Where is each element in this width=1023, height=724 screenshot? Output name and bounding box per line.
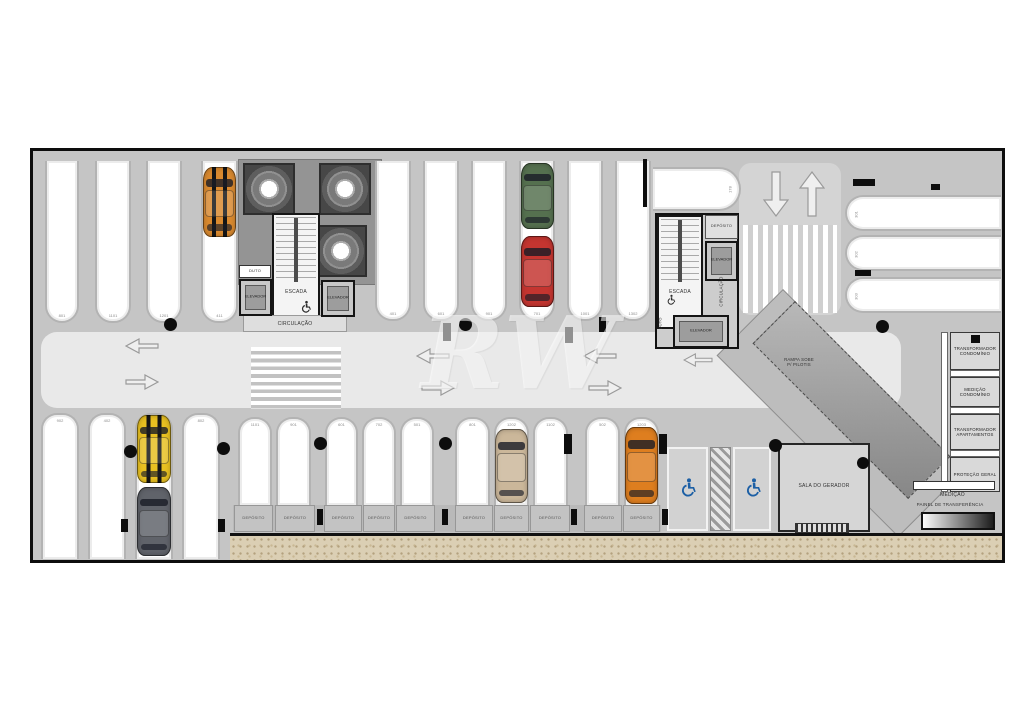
stall-number: 501 [402,422,432,427]
stall-number: 1001 [569,311,601,316]
storage-room: DEPÓSITO [705,215,738,239]
column [876,320,889,333]
storage-unit: DEPÓSITO [396,505,435,532]
ground-strip [230,533,1002,560]
storage-label: DEPÓSITO [706,224,737,229]
stall-number: 1302 [617,311,649,316]
door-strip [950,370,1000,377]
ventilation-fan [315,225,367,277]
circulation-label: CIRCULAÇÃO [718,262,723,322]
parking-stall: 302 [845,235,1001,271]
wall-pilaster [317,509,323,525]
parking-stall: 1102 [533,417,568,505]
room-label: TRANSFORMADOR CONDOMÍNIO [951,346,999,356]
parking-stall: 1101 [95,161,131,323]
parking-stall: 801 [455,417,490,505]
parking-stall: 902 [41,413,79,559]
floor-plan-sheet: { "title_watermark": "RW", "colors": { "… [0,0,1023,724]
stall-number: 178 [728,183,733,197]
parking-stall: 901 [471,161,507,321]
ventilation-fan [319,163,371,215]
storage-unit-label: DEPÓSITO [495,516,528,521]
storage-unit-label: DEPÓSITO [397,516,434,521]
storage-unit-label: DEPÓSITO [531,516,569,521]
storage-unit-label: DEPÓSITO [325,516,361,521]
parking-stall: 401 [375,161,411,321]
stall-number: 1102 [535,422,566,427]
wall-pilaster [853,179,875,186]
wall-pilaster [442,509,448,525]
elevator-label: ELEVADOR [323,294,353,299]
stall-number: 1101 [97,313,129,318]
direction-arrow-right-icon [588,380,622,396]
stair-rail [294,218,298,282]
storage-unit: DEPÓSITO [530,505,570,532]
generator-room: SALA DO GERADOR [778,443,870,532]
transfer-panel [921,512,995,530]
stall-number: 303 [854,290,859,304]
direction-arrow-left-icon [416,348,450,364]
stall-number: 901 [278,422,309,427]
car-red [521,236,554,307]
parking-stall: 802 [182,413,220,559]
accessible-hatch-strip [710,447,731,531]
column [164,318,177,331]
storage-unit-label: DEPÓSITO [364,516,394,521]
wall-pilaster [931,184,940,190]
stall-number: 411 [203,313,236,318]
stairs-label: ESCADA [274,289,318,295]
storage-unit-label: DEPÓSITO [585,516,621,521]
parking-stall: 702 [362,417,396,505]
stall-number: 601 [327,422,356,427]
wall-pilaster [564,434,572,454]
storage-unit: DEPÓSITO [363,505,395,532]
stall-number: 702 [364,422,394,427]
storage-unit: DEPÓSITO [584,505,622,532]
car-green [521,163,554,229]
direction-arrow-right-icon [125,374,159,390]
generator-room-label: SALA DO GERADOR [784,483,863,489]
column [314,437,327,450]
parking-stall: 801 [45,161,79,323]
metering-condo-room: MEDIÇÃO CONDOMÍNIO [950,377,1000,407]
storage-unit: DEPÓSITO [623,505,660,532]
stair-rail [678,220,682,282]
ramp-arrow-up-icon [799,171,825,217]
parking-stall: 601 [423,161,459,321]
stall-number: 801 [47,313,77,318]
direction-arrow-right-icon [421,380,455,396]
metering-label: MEDIÇÃO [905,492,1000,498]
column [124,445,137,458]
transformer-apartments-room: TRANSFORMADOR APARTAMENTOS [950,414,1000,450]
car-orange-sport [203,167,236,237]
stall-number: 802 [184,418,218,423]
parking-stall: 601 [325,417,358,505]
wall-pilaster [599,317,606,332]
door-bar [913,481,995,490]
stall-number: 402 [90,418,124,423]
stall-number: 701 [521,311,553,316]
direction-arrow-left-icon [683,353,713,367]
parking-stall: 301 [845,195,1001,231]
duct-label: DUTO [659,307,664,339]
ramp-label: RAMPA SOBE P/ PILOTIS [761,357,837,367]
car-amber [625,427,658,504]
wall-pilaster [121,519,128,532]
room-label: PROTEÇÃO GERAL [954,472,997,477]
column [769,439,782,452]
storage-unit-label: DEPÓSITO [276,516,314,521]
generator-vent [795,523,849,533]
wall-pilaster [659,434,667,454]
transfer-panel-label: PAINEL DE TRANSFERÊNCIA [895,502,1005,507]
wall-pilaster [662,509,668,525]
parking-stall: 502 [585,417,620,505]
wall-pilaster [218,519,225,532]
stall-number: 1202 [496,422,527,427]
wheelchair-icon [300,300,313,318]
stall-number: 801 [457,422,488,427]
parking-stall: 501 [400,417,434,505]
pedestrian-crossing [251,347,341,409]
wall-pilaster [855,270,871,276]
corridor-door-strip [941,332,948,492]
storage-unit-label: DEPÓSITO [235,516,272,521]
wall-pilaster [565,327,573,343]
stall-number: 901 [473,311,505,316]
parking-stall: 1101 [238,417,272,505]
equipment-box [971,335,980,343]
elevator-right: ELEVADOR [321,280,355,317]
storage-unit: DEPÓSITO [275,505,315,532]
ramp-label-line2: P/ PILOTIS [787,362,811,367]
room-label: MEDIÇÃO CONDOMÍNIO [951,387,999,397]
parking-stall: 1201 [146,161,182,323]
storage-unit-label: DEPÓSITO [456,516,492,521]
door-strip [950,407,1000,414]
storage-unit-label: DEPÓSITO [624,516,659,521]
column [439,437,452,450]
wheelchair-icon [744,477,764,502]
wall-pilaster [571,509,577,525]
elevator-left: ELEVADOR [239,279,272,316]
stall-number: 502 [587,422,618,427]
wall-pilaster [443,323,451,341]
stall-number: 401 [377,311,409,316]
parking-stall: 303 [845,277,1001,313]
circulation-area: CIRCULAÇÃO [243,315,347,332]
column [857,457,869,469]
duct-box: DUTO [239,265,271,278]
stall-number: 902 [43,418,77,423]
ramp-arrow-down-icon [763,171,789,217]
parking-stall: 178 [653,167,741,211]
column [217,442,230,455]
car-gray [137,487,171,556]
parking-stall: 901 [276,417,311,505]
car-yellow-sport [137,415,171,483]
plan-outer-wall: 801 1101 1201 411 ESCADA DUTO ELEVADOR E… [30,148,1005,563]
column [459,318,472,331]
car-tan [495,429,528,503]
elevator-label: ELEVADOR [241,293,270,298]
wheelchair-icon [679,477,699,502]
wheelchair-icon [666,292,677,310]
stall-number: 302 [854,248,859,262]
stairs-right: ESCADA [657,215,703,329]
parking-stall: 402 [88,413,126,559]
door-strip [950,450,1000,457]
room-label: TRANSFORMADOR APARTAMENTOS [951,427,999,437]
elevator-label: ELEVADOR [675,328,727,333]
direction-arrow-left-icon [583,348,617,364]
direction-arrow-left-icon [125,338,159,354]
stall-number: 301 [854,208,859,222]
storage-unit: DEPÓSITO [494,505,529,532]
stall-number: 1201 [148,313,180,318]
stall-number: 601 [425,311,457,316]
stall-number: 1101 [240,422,270,427]
storage-unit: DEPÓSITO [455,505,493,532]
parking-stall: 1001 [567,161,603,321]
ventilation-fan [243,163,295,215]
storage-unit: DEPÓSITO [234,505,273,532]
wall-stub [643,159,647,207]
circulation-label: CIRCULAÇÃO [244,321,346,327]
storage-unit: DEPÓSITO [324,505,362,532]
duct-label: DUTO [240,269,270,274]
